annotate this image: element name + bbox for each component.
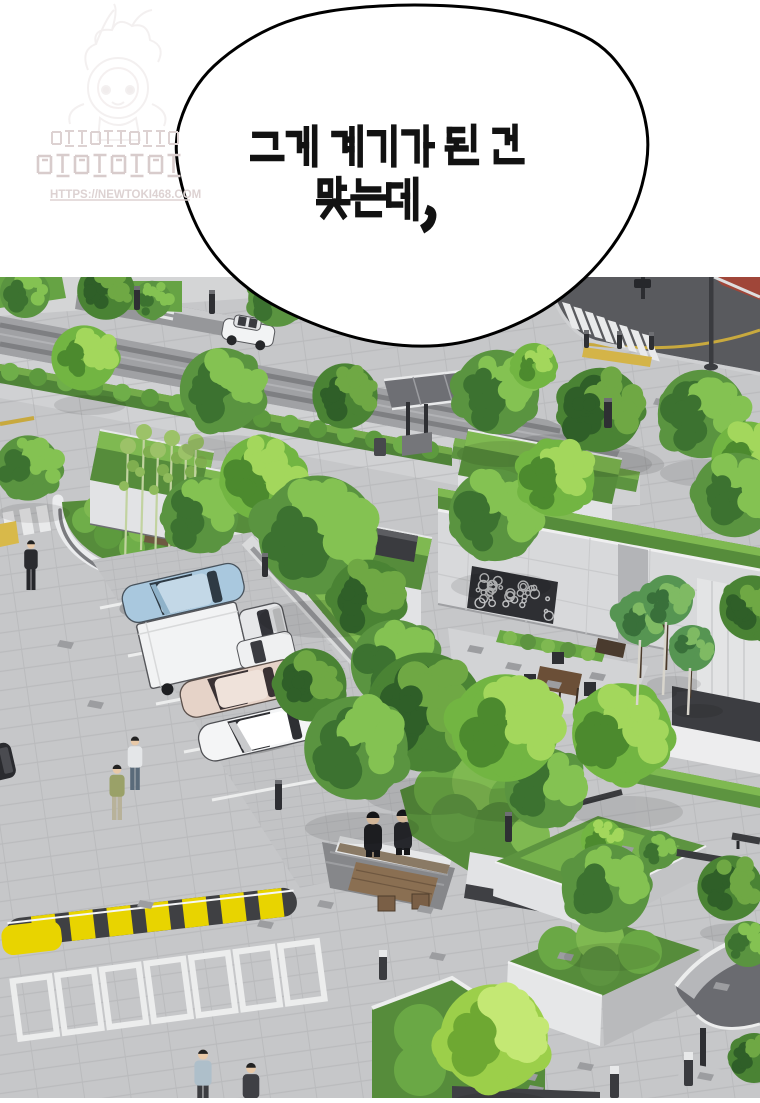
- svg-text:HTTPS://NEWTOKI468.COM: HTTPS://NEWTOKI468.COM: [50, 189, 201, 201]
